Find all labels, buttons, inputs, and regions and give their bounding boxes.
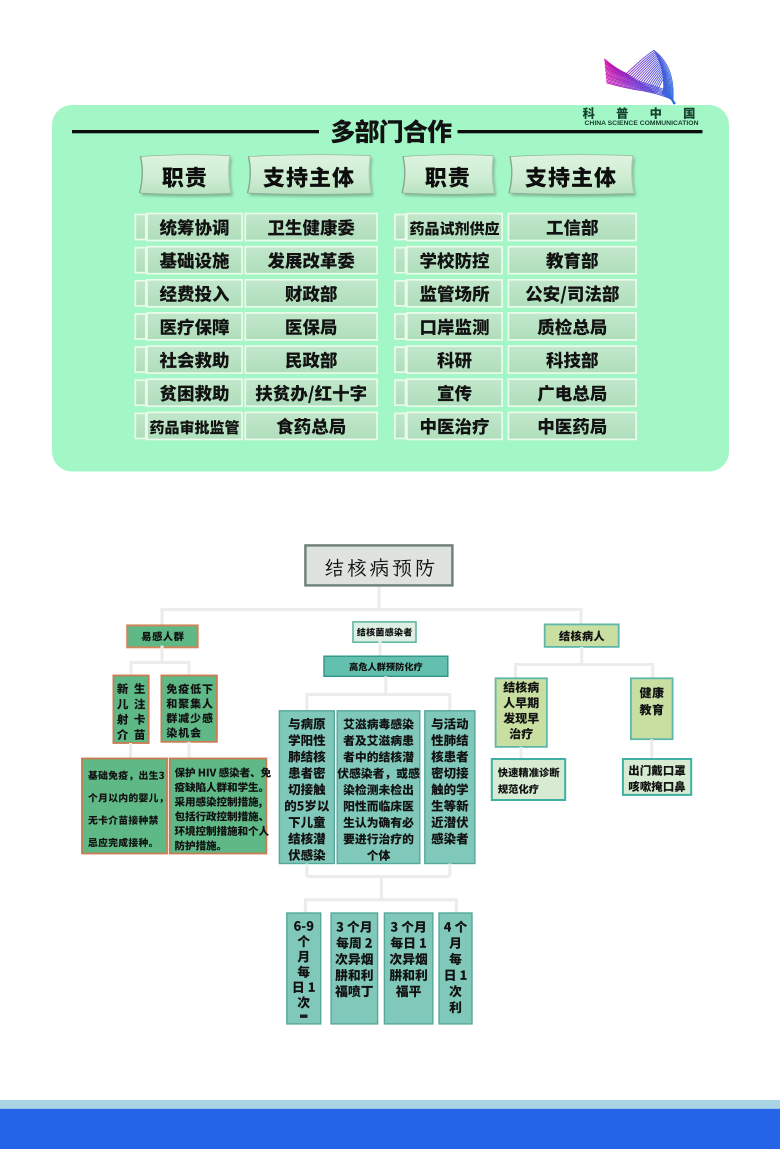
svg-text:CHINA SCIENCE COMMUNICATION: CHINA SCIENCE COMMUNICATION bbox=[585, 120, 699, 127]
